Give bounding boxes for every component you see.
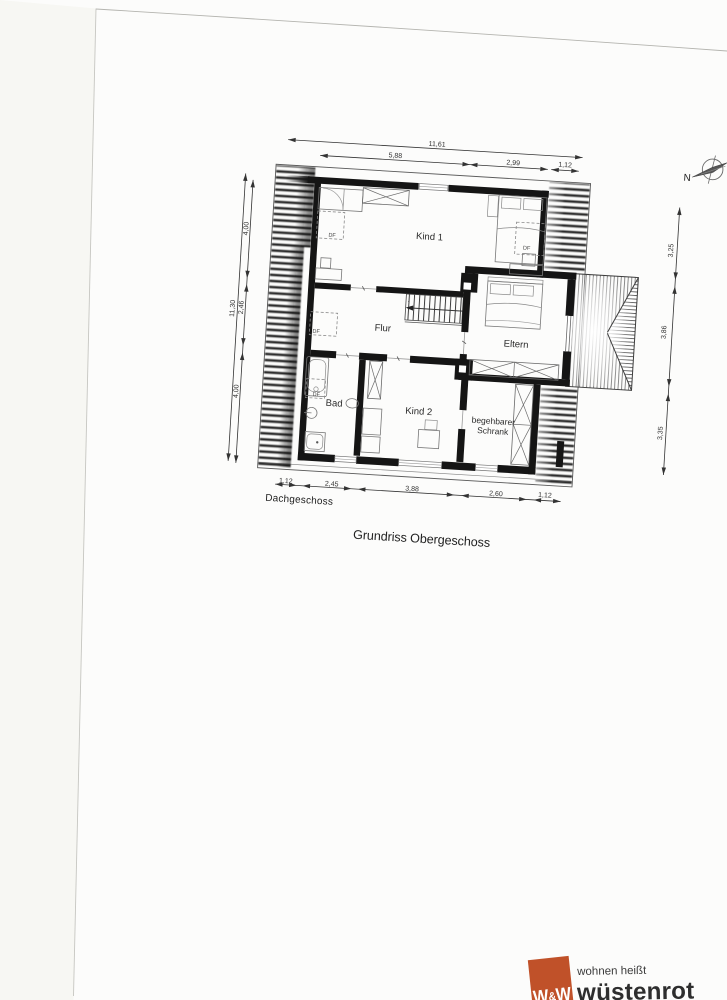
svg-text:3,86: 3,86: [661, 325, 669, 339]
svg-text:Kind 1: Kind 1: [416, 231, 444, 244]
svg-text:Bad: Bad: [325, 398, 343, 410]
svg-text:Dachgeschoss: Dachgeschoss: [265, 493, 334, 508]
svg-text:3,25: 3,25: [668, 243, 676, 257]
svg-text:1,12: 1,12: [279, 478, 293, 486]
svg-text:Schrank: Schrank: [477, 425, 509, 437]
svg-text:2,99: 2,99: [506, 160, 520, 168]
svg-text:11,61: 11,61: [428, 141, 445, 149]
svg-text:DF: DF: [312, 392, 320, 398]
svg-text:1,12: 1,12: [538, 492, 552, 500]
svg-text:Eltern: Eltern: [503, 338, 528, 350]
svg-text:Flur: Flur: [374, 323, 391, 335]
svg-text:5,88: 5,88: [388, 152, 402, 160]
svg-text:wohnen heißt: wohnen heißt: [576, 965, 647, 978]
svg-text:wüstenrot: wüstenrot: [576, 978, 695, 1000]
svg-text:DF: DF: [328, 233, 336, 239]
svg-text:2,46: 2,46: [238, 300, 246, 314]
svg-text:3,88: 3,88: [405, 486, 419, 494]
svg-text:Grundriss Obergeschoss: Grundriss Obergeschoss: [353, 528, 491, 550]
svg-text:N: N: [683, 173, 691, 184]
svg-text:DF: DF: [523, 245, 531, 251]
svg-text:2,45: 2,45: [325, 481, 339, 489]
svg-text:1,12: 1,12: [558, 162, 572, 170]
svg-text:Kind 2: Kind 2: [405, 406, 433, 419]
svg-text:3,35: 3,35: [657, 426, 665, 440]
svg-text:4,00: 4,00: [233, 384, 241, 398]
svg-text:DF: DF: [312, 329, 320, 335]
svg-text:2,60: 2,60: [489, 490, 503, 498]
svg-text:11,30: 11,30: [229, 300, 237, 317]
svg-text:4,00: 4,00: [243, 221, 251, 235]
